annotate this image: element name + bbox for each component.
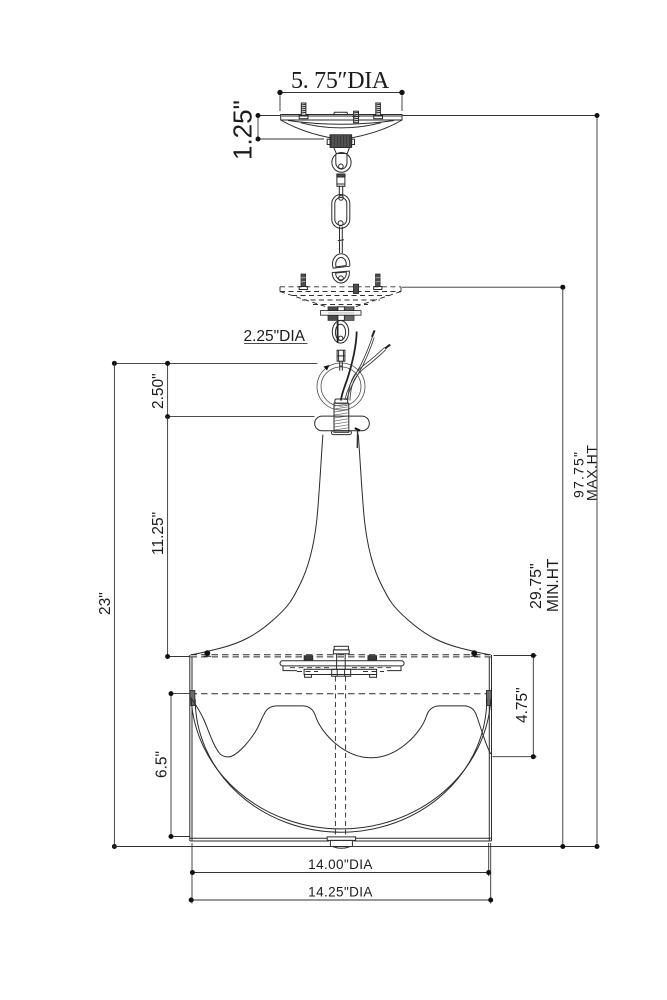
svg-text:MIN.HT: MIN.HT	[545, 558, 562, 612]
svg-text:2.50": 2.50"	[150, 373, 167, 409]
svg-text:14.00"DIA: 14.00"DIA	[308, 857, 373, 872]
svg-text:5. 75″DIA: 5. 75″DIA	[291, 68, 390, 94]
svg-text:23": 23"	[97, 592, 114, 615]
svg-text:29.75": 29.75"	[528, 563, 545, 609]
svg-text:14.25"DIA: 14.25"DIA	[308, 885, 373, 900]
svg-text:11.25": 11.25"	[150, 512, 167, 555]
svg-text:4.75": 4.75"	[514, 687, 531, 723]
svg-text:MAX.HT: MAX.HT	[584, 445, 600, 502]
svg-text:6.5": 6.5"	[154, 751, 171, 778]
svg-text:2.25"DIA: 2.25"DIA	[244, 328, 306, 345]
svg-text:1.25": 1.25"	[228, 100, 258, 160]
